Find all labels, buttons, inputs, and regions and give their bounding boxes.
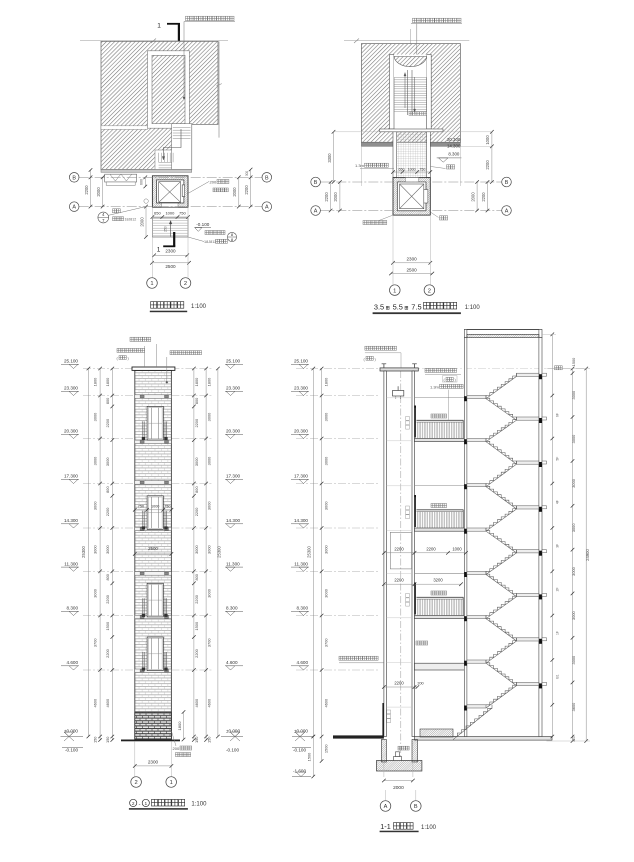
svg-text:2: 2 [134,780,137,786]
svg-text:2200: 2200 [394,546,404,551]
svg-text:2200: 2200 [485,160,490,170]
svg-text:2: 2 [132,801,135,807]
svg-text:2200: 2200 [105,648,110,657]
svg-text:25.100: 25.100 [64,359,78,364]
svg-text:3000: 3000 [194,457,199,466]
svg-text:14.300: 14.300 [447,144,461,149]
svg-text:3000: 3000 [206,456,211,465]
svg-text:200: 200 [173,746,180,751]
svg-text:3000: 3000 [571,566,576,575]
svg-text:1000: 1000 [408,167,416,171]
svg-text:4600: 4600 [194,698,199,707]
svg-text:2200: 2200 [84,185,89,195]
svg-text:3.5: 3.5 [374,302,384,311]
svg-text:250: 250 [164,226,168,232]
svg-text:2200: 2200 [105,594,110,603]
svg-text:1: 1 [150,281,153,287]
svg-text:B: B [314,180,318,186]
svg-text:4600: 4600 [323,698,328,707]
svg-text:B: B [505,180,509,186]
svg-text:3000: 3000 [105,457,110,466]
svg-text:800: 800 [105,486,110,493]
svg-text:2200: 2200 [105,418,110,427]
svg-text:600: 600 [140,179,144,185]
svg-text:1F: 1F [556,631,560,635]
svg-text:17.300: 17.300 [64,474,78,479]
svg-text:2200: 2200 [194,648,199,657]
svg-text:3000: 3000 [571,434,576,443]
svg-text:150: 150 [194,736,199,743]
svg-text:750: 750 [179,211,186,216]
svg-text:17.300: 17.300 [294,474,308,479]
svg-text:1:100: 1:100 [191,802,207,808]
svg-text:20.300: 20.300 [294,429,308,434]
svg-text:3000: 3000 [571,390,576,399]
svg-text:5F: 5F [556,457,560,461]
svg-text:3000: 3000 [206,501,211,510]
svg-text:2200: 2200 [194,507,199,516]
svg-text:25.100: 25.100 [294,359,308,364]
svg-text:1800: 1800 [105,377,110,386]
svg-text:A: A [265,205,269,211]
svg-text:800: 800 [194,397,199,404]
svg-text:24900: 24900 [585,549,590,561]
svg-text:6F: 6F [556,413,560,417]
svg-text:150: 150 [105,736,110,743]
svg-text:2000: 2000 [393,785,404,791]
svg-text:8.300: 8.300 [226,606,238,611]
svg-text:-0.100: -0.100 [293,748,306,753]
svg-text:1000: 1000 [485,135,490,145]
svg-text:-0.100: -0.100 [65,748,78,753]
svg-text:4.600: 4.600 [297,660,309,665]
svg-text:2500: 2500 [406,267,417,272]
svg-text:1000: 1000 [165,211,175,216]
svg-text:-1.600: -1.600 [293,769,306,774]
svg-text:4600: 4600 [206,698,211,707]
svg-text:1: 1 [393,288,396,294]
svg-text:±0.000: ±0.000 [226,729,240,734]
svg-text:3000: 3000 [571,478,576,487]
svg-text:3000: 3000 [323,412,328,421]
svg-text:650: 650 [154,211,161,216]
svg-text:1800: 1800 [323,377,328,386]
svg-text:B: B [265,175,269,181]
svg-text:18J812: 18J812 [204,240,216,244]
svg-text:4600: 4600 [105,698,110,707]
svg-text:2200: 2200 [194,594,199,603]
svg-text:14.300: 14.300 [294,518,308,523]
svg-text:25300: 25300 [307,546,312,558]
svg-text:3000: 3000 [323,501,328,510]
svg-text:25300: 25300 [81,546,86,558]
svg-text:B1: B1 [556,674,560,678]
svg-text:1800: 1800 [206,377,211,386]
svg-text:4.600: 4.600 [226,660,238,665]
svg-text:3000: 3000 [93,501,98,510]
svg-text:2200: 2200 [481,192,486,202]
svg-text:4600: 4600 [93,698,98,707]
svg-text:1000: 1000 [151,505,159,509]
svg-text:A: A [72,205,76,211]
svg-text:200: 200 [417,682,423,686]
svg-text:800: 800 [105,397,110,404]
svg-text:8.300: 8.300 [67,606,79,611]
svg-text:1-1: 1-1 [380,822,390,831]
svg-text:1500: 1500 [105,621,110,630]
svg-text:3000: 3000 [105,544,110,553]
svg-text:3200: 3200 [433,578,443,583]
svg-text:2300: 2300 [406,257,417,262]
svg-text:150: 150 [206,736,211,743]
svg-text:800: 800 [194,573,199,580]
svg-text:2200: 2200 [244,185,249,195]
svg-text:3000: 3000 [323,588,328,597]
svg-text:1800: 1800 [194,377,199,386]
svg-text:2300: 2300 [148,759,159,764]
svg-text:-0.100: -0.100 [226,748,239,753]
svg-text:11.300: 11.300 [294,562,308,567]
svg-text:20.300: 20.300 [64,429,78,434]
svg-text:2000: 2000 [333,192,338,202]
svg-text:3000: 3000 [93,588,98,597]
svg-text:23.300: 23.300 [64,386,78,391]
svg-text:8.300: 8.300 [448,151,460,156]
svg-text:3000: 3000 [323,544,328,553]
svg-text:3F: 3F [556,544,560,548]
svg-text:2200: 2200 [426,546,436,551]
svg-text:2200: 2200 [324,192,329,202]
svg-text:A: A [505,209,509,215]
svg-text:1: 1 [157,23,161,30]
svg-text:1:100: 1:100 [421,825,437,831]
svg-text:3000: 3000 [93,544,98,553]
svg-text:1500: 1500 [194,621,199,630]
svg-text:1000: 1000 [452,546,462,551]
svg-text:A: A [314,209,318,215]
svg-text:3000: 3000 [571,655,576,664]
svg-text:300: 300 [245,171,249,177]
svg-text:4.600: 4.600 [67,660,79,665]
svg-text:±0.000: ±0.000 [64,729,78,734]
svg-text:1: 1 [170,780,173,786]
svg-text:-0.100: -0.100 [196,222,209,227]
svg-text:1800: 1800 [93,377,98,386]
svg-text:2300: 2300 [165,249,176,254]
svg-text:A: A [384,804,388,810]
svg-text:1:100: 1:100 [465,305,481,311]
svg-text:3700: 3700 [93,638,98,647]
svg-text:7.5: 7.5 [411,302,421,311]
svg-text:-: - [139,801,141,807]
svg-text:5.5: 5.5 [393,302,403,311]
svg-text:25300: 25300 [217,546,222,558]
svg-text:2200: 2200 [105,507,110,516]
svg-text:2000: 2000 [96,187,101,197]
svg-text:3300: 3300 [327,153,332,163]
svg-text:1: 1 [144,801,147,807]
svg-text:2200: 2200 [394,681,404,686]
svg-text:3700: 3700 [323,638,328,647]
svg-text:2200: 2200 [394,578,404,583]
svg-text:2000: 2000 [139,217,144,227]
svg-text:2500: 2500 [148,546,158,551]
svg-text:3000: 3000 [323,456,328,465]
svg-text:23.300: 23.300 [226,386,240,391]
svg-text:2200: 2200 [194,418,199,427]
svg-text:2: 2 [428,288,431,294]
svg-text:3000: 3000 [93,412,98,421]
svg-text:18J812: 18J812 [125,217,137,221]
svg-text:2F: 2F [556,587,560,591]
svg-text:3600: 3600 [571,702,576,711]
svg-text:3000: 3000 [206,588,211,597]
svg-text:2: 2 [184,281,187,287]
svg-text:11.300: 11.300 [64,562,78,567]
svg-text:17.300: 17.300 [226,474,240,479]
svg-text:3000: 3000 [93,456,98,465]
svg-text:3000: 3000 [206,412,211,421]
svg-text:20.300: 20.300 [226,429,240,434]
svg-text:1500: 1500 [571,357,576,366]
svg-text:1800: 1800 [177,721,182,731]
svg-text:800: 800 [194,486,199,493]
svg-text:25.100: 25.100 [226,359,240,364]
svg-text:1500: 1500 [307,752,312,761]
svg-text:3700: 3700 [206,638,211,647]
svg-text:2000: 2000 [232,187,237,197]
svg-text:8.300: 8.300 [297,606,309,611]
svg-text:800: 800 [105,573,110,580]
svg-text:4F: 4F [556,500,560,504]
svg-text:1.3m: 1.3m [430,384,440,389]
svg-text:1500: 1500 [323,744,328,753]
svg-text:1.3m: 1.3m [355,163,365,168]
svg-text:20.300: 20.300 [447,137,461,142]
svg-text:200: 200 [210,180,217,185]
svg-text:3000: 3000 [206,544,211,553]
svg-text:14.300: 14.300 [64,518,78,523]
svg-text:3000: 3000 [571,523,576,532]
svg-text:3000: 3000 [571,610,576,619]
svg-text:150: 150 [93,736,98,743]
svg-text:B: B [414,804,418,810]
svg-text:3000: 3000 [194,544,199,553]
svg-text:2000: 2000 [470,192,475,202]
svg-text:750: 750 [138,505,144,509]
svg-text:23.300: 23.300 [294,386,308,391]
svg-text:11.300: 11.300 [226,562,240,567]
svg-text:750: 750 [419,167,425,171]
svg-text:1:100: 1:100 [191,304,207,310]
svg-text:B: B [72,175,76,181]
svg-text:2500: 2500 [165,264,176,269]
svg-text:1: 1 [157,247,161,254]
svg-text:14.300: 14.300 [226,518,240,523]
